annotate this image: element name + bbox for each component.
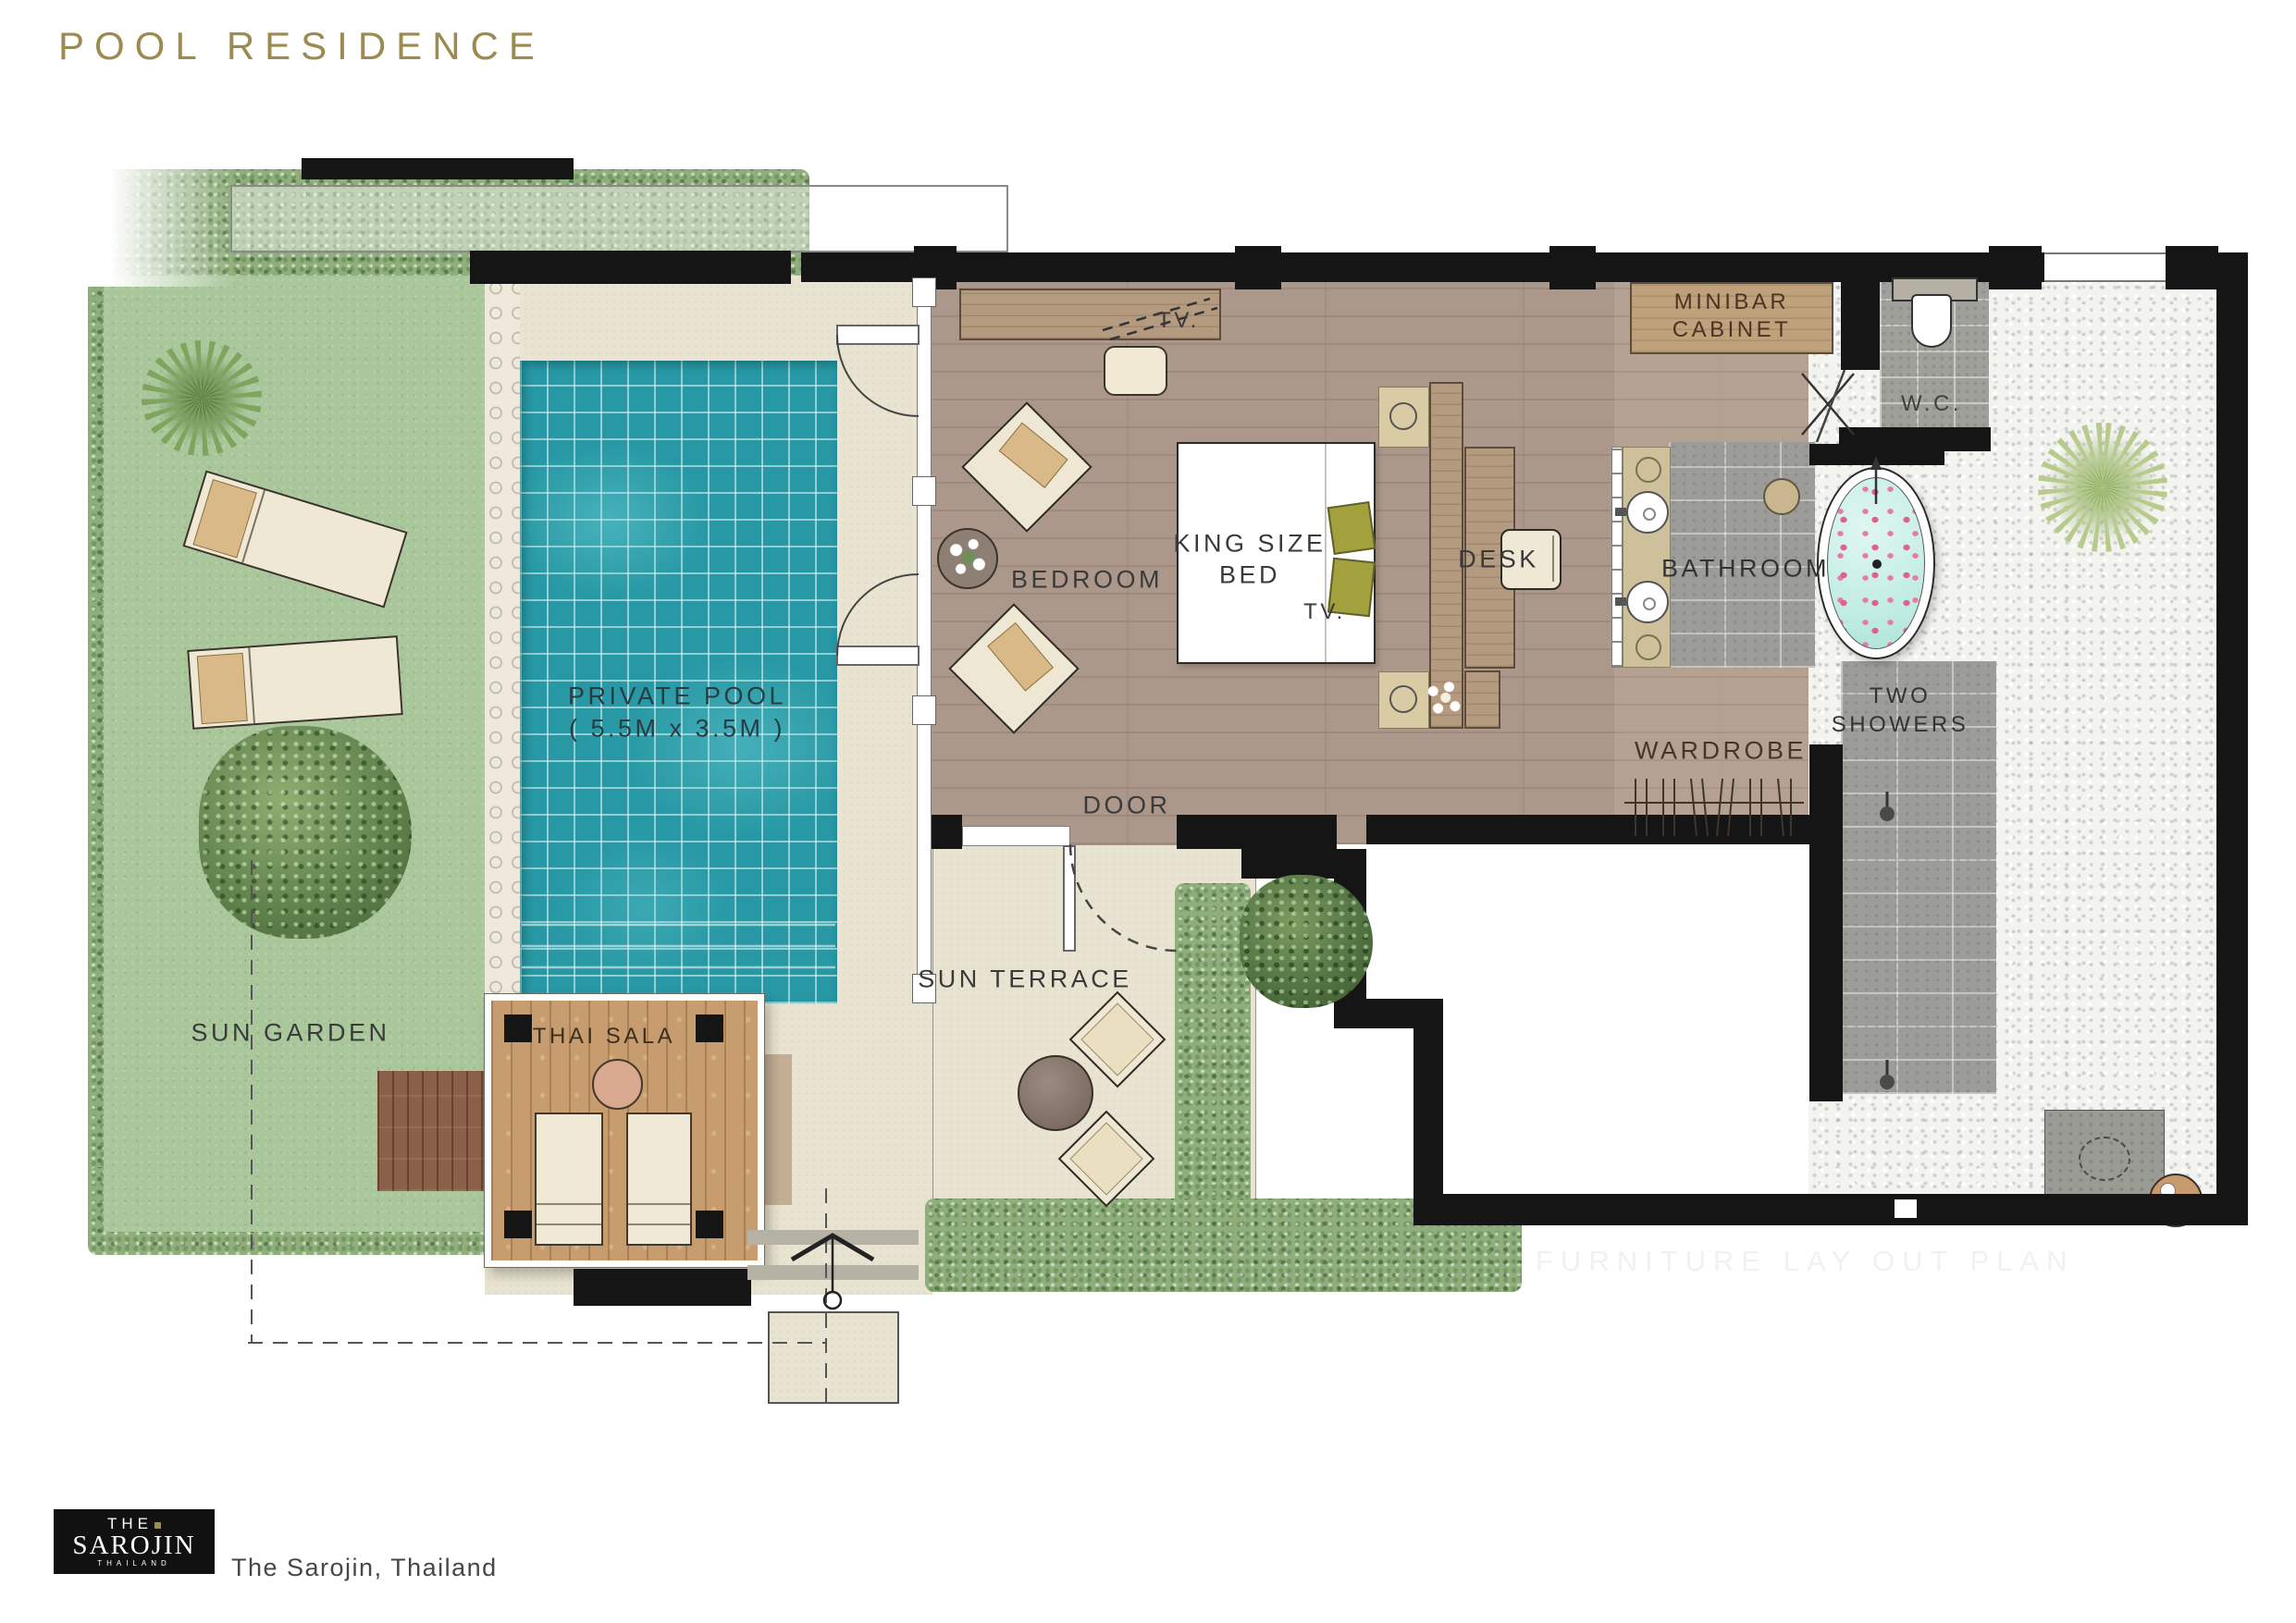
label-wardrobe: WARDROBE [1635, 737, 1807, 766]
logo-sarojin: SAROJIN [72, 1531, 195, 1559]
wardrobe-hangers-icon [1624, 779, 1804, 836]
property-dashed-lines [248, 860, 826, 1410]
label-private-pool: PRIVATE POOL [568, 682, 786, 711]
floorplan-page: POOL RESIDENCE [0, 0, 2296, 1623]
label-thai-sala: THAI SALA [533, 1024, 675, 1050]
label-door: DOOR [1083, 792, 1171, 820]
label-pool-size: ( 5.5M x 3.5M ) [569, 715, 785, 744]
label-tv-bed: TV. [1303, 599, 1346, 625]
wc-door-icon [1817, 370, 1845, 442]
tub-faucet-icon [1870, 456, 1882, 504]
footer-caption: The Sarojin, Thailand [231, 1554, 498, 1582]
logo-gold-square-icon [154, 1522, 161, 1529]
label-two: TWO [1870, 683, 1931, 709]
label-cabinet: CABINET [1673, 317, 1792, 343]
label-wc: W.C. [1901, 391, 1962, 417]
sarojin-logo: THE SAROJIN THAILAND [54, 1509, 215, 1574]
watermark-text: FURNITURE LAY OUT PLAN [1536, 1245, 2075, 1278]
entry-arrow-icon [792, 1236, 873, 1309]
terrace-door-swing-icon [1064, 844, 1177, 951]
pool-steps [522, 925, 835, 967]
label-minibar: MINIBAR [1674, 289, 1790, 315]
label-bedroom: BEDROOM [1011, 566, 1163, 595]
label-sun-terrace: SUN TERRACE [918, 965, 1132, 994]
shower-head-icon [1880, 792, 1895, 1089]
label-desk: DESK [1458, 546, 1539, 574]
label-king-size: KING SIZE [1173, 530, 1326, 559]
label-bathroom: BATHROOM [1661, 555, 1830, 584]
label-showers: SHOWERS [1832, 712, 1969, 738]
pool-door-icon [837, 326, 919, 665]
sink-faucet-icon [1615, 508, 1626, 606]
luggage-rack-icon [1802, 374, 1854, 435]
logo-thailand: THAILAND [97, 1559, 171, 1568]
label-bed: BED [1219, 561, 1280, 590]
label-tv-console: TV. [1157, 308, 1200, 334]
label-sun-garden: SUN GARDEN [191, 1019, 389, 1048]
logo-the: THE [107, 1515, 153, 1532]
